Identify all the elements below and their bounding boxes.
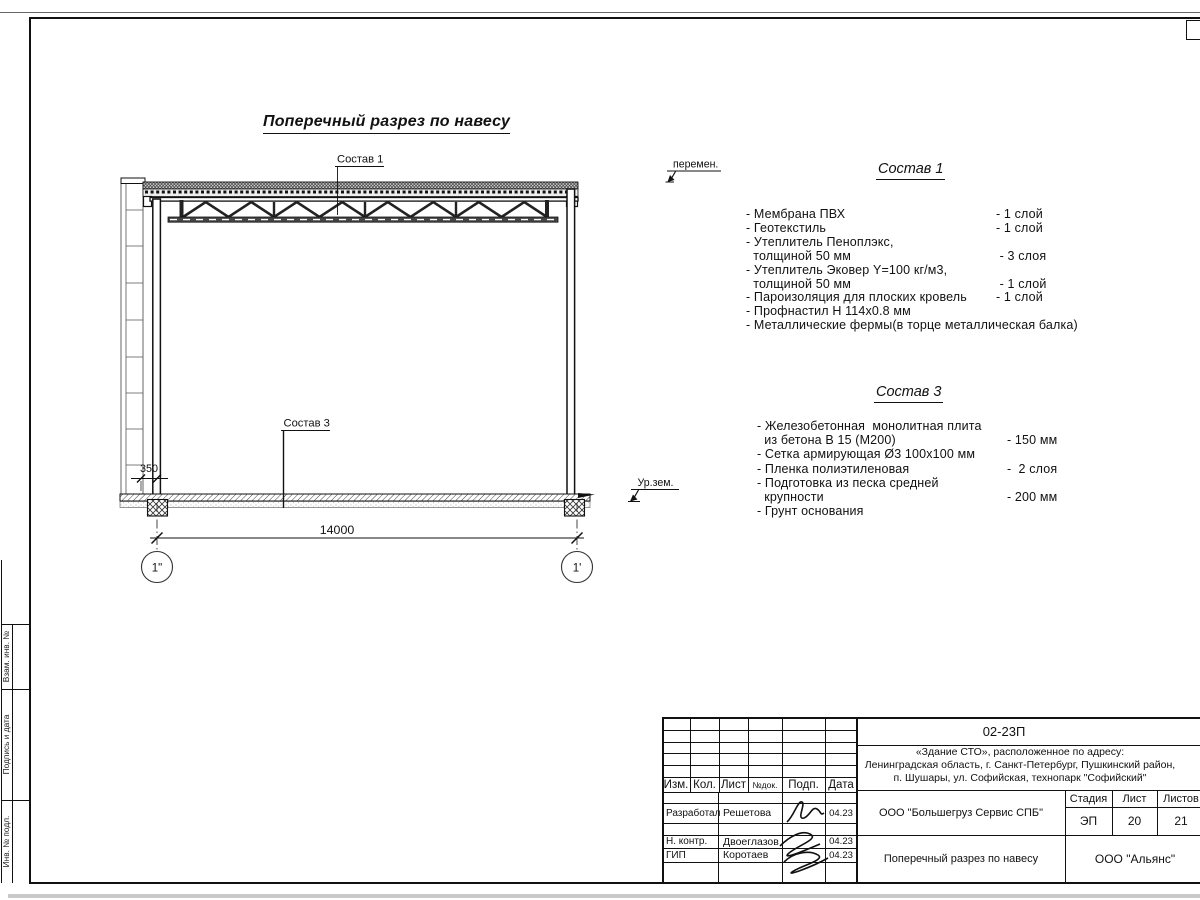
tb-col-podp: Подп. [782, 777, 825, 792]
tb-stage-value: ЭП [1065, 807, 1112, 835]
tb-org: ООО "Альянс" [1065, 835, 1200, 883]
callout-sostav1: Состав 1 [337, 154, 383, 166]
tb-company: ООО "Большегруз Сервис СПБ" [857, 790, 1065, 835]
roof-truss [150, 198, 578, 223]
tb-object-line1: «Здание СТО», расположенное по адресу: [857, 746, 1183, 759]
tb-object-address: «Здание СТО», расположенное по адресу: Л… [857, 746, 1183, 785]
tb-col-data: Дата [825, 777, 857, 792]
tb-line [662, 765, 857, 766]
tb-name-3: Коротаев [723, 848, 782, 862]
tb-doc-title: Поперечный разрез по навесу [857, 835, 1065, 883]
tb-listov-label: Листов [1157, 790, 1200, 807]
axis-right-label: 1' [573, 563, 582, 575]
tb-line [662, 742, 857, 743]
tb-line [662, 717, 664, 883]
tb-list-label: Лист [1112, 790, 1157, 807]
tb-role-1: Разработал [666, 803, 718, 823]
tb-object-line2: Ленинградская область, г. Санкт-Петербур… [857, 759, 1183, 772]
tb-date-1: 04.23 [825, 806, 857, 820]
level-ground-label: Ур.зем. [638, 477, 674, 489]
tb-line [662, 730, 857, 731]
dim-main-text: 14000 [320, 523, 355, 537]
tb-line [662, 753, 857, 754]
tb-list-value: 20 [1112, 807, 1157, 835]
callouts: Состав 1 Состав 3 [281, 154, 384, 509]
dim-offset-text: 350 [140, 463, 158, 475]
tb-name-1: Решетова [723, 803, 782, 823]
tb-listov-value: 21 [1157, 807, 1200, 835]
tb-line [718, 793, 719, 882]
tb-line [662, 823, 857, 824]
tb-stage-label: Стадия [1065, 790, 1112, 807]
tb-doc-number: 02-23П [940, 718, 1068, 745]
signature-2 [776, 828, 834, 878]
tb-col-list: Лист [719, 777, 748, 792]
tb-col-doc: №док. [748, 777, 782, 792]
floor-slab [120, 493, 595, 516]
tb-line [662, 717, 1200, 719]
level-marks: перемен. Ур.зем. [628, 159, 721, 502]
callout-sostav3: Состав 3 [284, 418, 330, 430]
level-variable-label: перемен. [673, 159, 718, 171]
tb-col-kol: Кол. [690, 777, 719, 792]
axis-left-label: 1" [152, 563, 162, 575]
tb-role-2: Н. контр. [666, 835, 718, 848]
tb-object-line3: п. Шушары, ул. Софийская, технопарк "Соф… [857, 772, 1183, 785]
signature-1 [784, 796, 826, 826]
tb-role-3: ГИП [666, 848, 718, 862]
columns [153, 189, 575, 495]
tb-line [662, 792, 857, 793]
dimensions: 14000 1" 1' 350 [131, 463, 593, 583]
tb-col-izm: Изм. [662, 777, 690, 792]
tb-name-2: Двоеглазов [723, 835, 782, 848]
left-wall [121, 178, 145, 498]
